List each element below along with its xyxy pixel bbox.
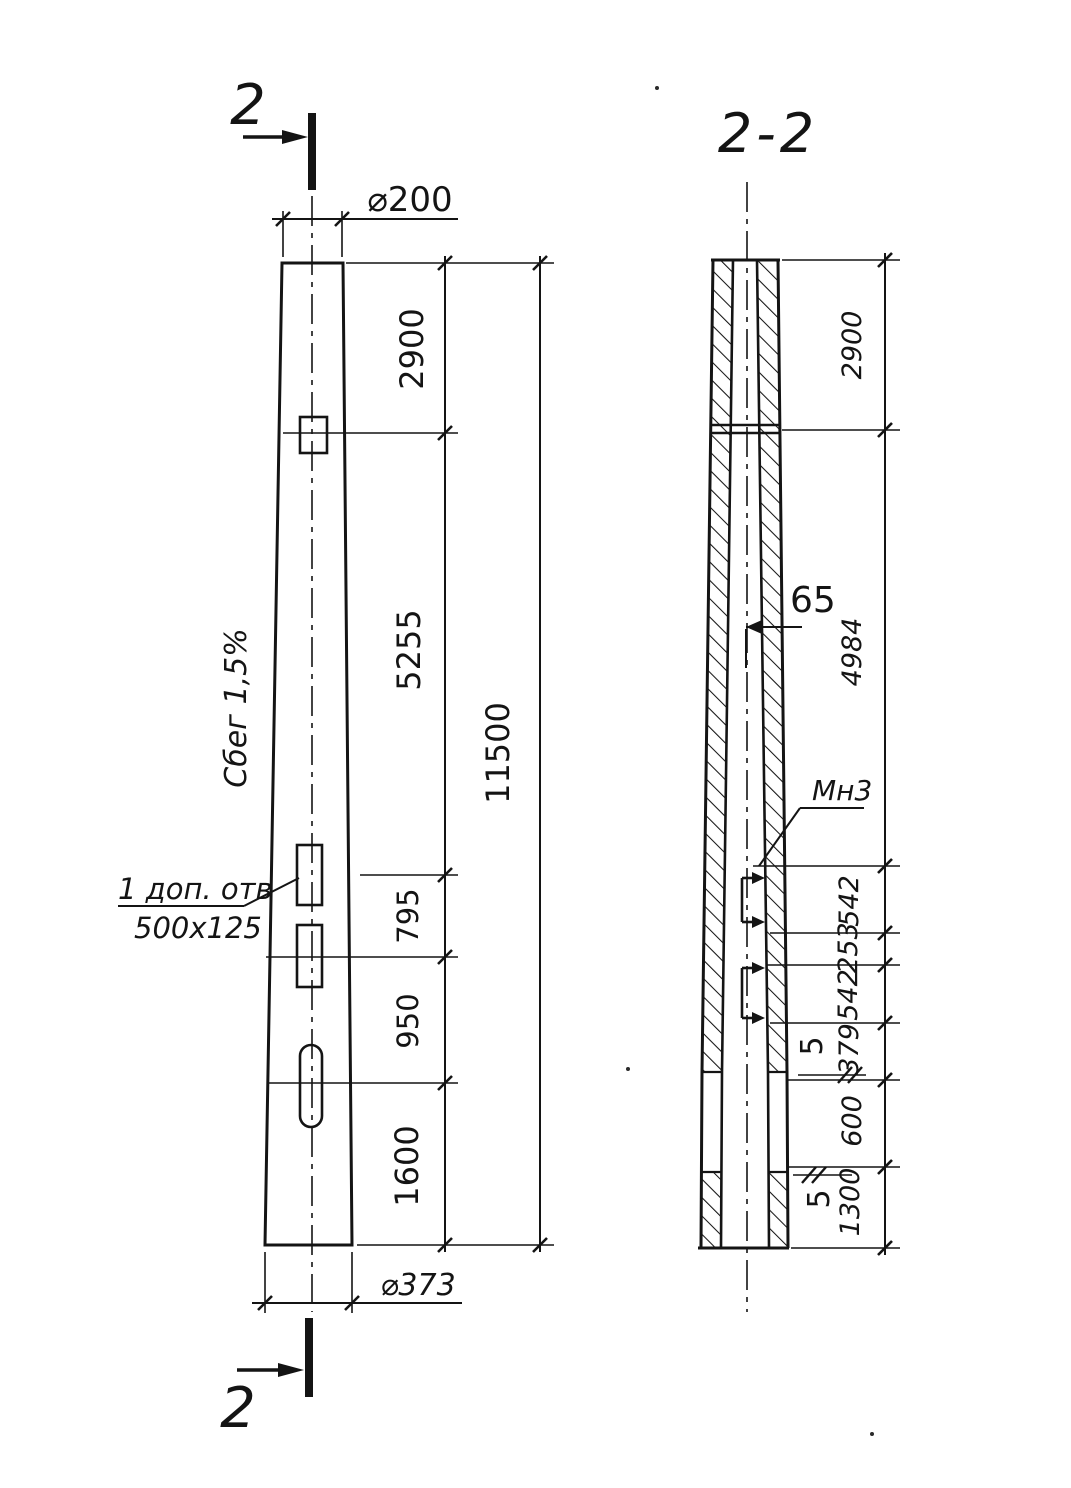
dim-379-text: 379: [834, 1023, 865, 1075]
hole-note-line2: 500x125: [134, 911, 262, 945]
dim-chain-front: 2900 5255 795 950 1600: [388, 256, 452, 1252]
section-view: 2-2: [698, 102, 900, 1312]
section-title: 2-2: [718, 102, 818, 165]
technical-drawing: { "meta": { "ink_color": "#141414", "bac…: [0, 0, 1071, 1488]
dim-s2900-text: 2900: [837, 311, 868, 380]
drawing-canvas: 2 ⌀200: [0, 0, 1071, 1488]
dim-total-length: 11500: [479, 256, 547, 1252]
dim-11500-text: 11500: [479, 702, 517, 804]
dim-542a-text: 542: [834, 875, 865, 927]
section-arrow-icon: [282, 130, 308, 144]
dim-top-diameter-text: ⌀200: [367, 180, 452, 220]
embedded-anchor-1: [742, 872, 765, 928]
dim-1600-text: 1600: [388, 1125, 426, 1206]
dim-5a-text: 5: [795, 1036, 830, 1055]
dim-950-text: 950: [391, 993, 425, 1048]
dim-bottom-diameter: ⌀373: [252, 1252, 462, 1313]
dim-arrow-icon: [746, 620, 762, 634]
dim-253-text: 253: [833, 922, 864, 974]
section-cut-marker-bottom: 2: [220, 1318, 309, 1441]
embedded-anchor-2: [742, 962, 765, 1024]
section-arrow-icon: [278, 1363, 304, 1377]
dim-bottom-diameter-text: ⌀373: [380, 1268, 455, 1303]
front-view: 2 ⌀200: [118, 73, 554, 1441]
dim-4984-text: 4984: [837, 618, 868, 687]
dim-top-diameter: ⌀200: [272, 180, 458, 257]
dim-1300-text: 1300: [835, 1168, 866, 1237]
dim-795-text: 795: [391, 888, 425, 943]
pole-outline: [265, 263, 352, 1245]
dim-bore-65: 65: [746, 580, 836, 668]
section-cut-label-bottom: 2: [220, 1376, 256, 1441]
dim-542b-text: 542: [833, 969, 864, 1021]
taper-label: Сбег 1,5%: [219, 628, 254, 787]
dim-5b-text: 5: [802, 1189, 837, 1208]
dim-65-text: 65: [790, 580, 836, 621]
dim-5255-text: 5255: [390, 609, 428, 690]
section-wall-hatching: [701, 260, 788, 1248]
dim-600-text: 600: [837, 1095, 868, 1147]
section-cut-label-top: 2: [230, 73, 266, 138]
section-cut-marker-top: 2: [230, 73, 312, 190]
hole-note-line1: 1 доп. отв: [118, 872, 273, 906]
dim-chain-section: 2900 4984 542 253 542 379 600 1300: [833, 253, 892, 1255]
embed-label-text: Мн3: [812, 774, 872, 807]
dim-2900-text: 2900: [393, 308, 431, 389]
